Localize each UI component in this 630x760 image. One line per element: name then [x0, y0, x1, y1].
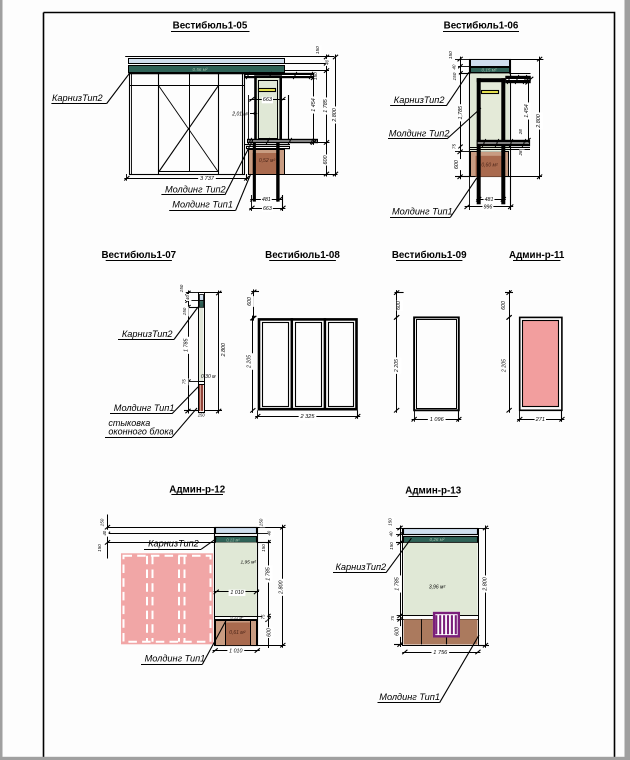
svg-text:600: 600: [266, 628, 272, 637]
svg-text:481: 481: [485, 197, 494, 203]
svg-text:1,785: 1,785: [458, 105, 464, 119]
svg-text:75: 75: [452, 144, 457, 150]
svg-text:996: 996: [483, 205, 492, 211]
svg-text:40: 40: [451, 64, 456, 70]
svg-text:КарнизТип2: КарнизТип2: [52, 93, 103, 103]
svg-text:0,30 м: 0,30 м: [201, 374, 216, 380]
svg-text:1 785: 1 785: [323, 98, 329, 112]
svg-text:0.56 м²: 0.56 м²: [193, 67, 208, 72]
svg-text:Вестибюль1-05: Вестибюль1-05: [173, 21, 248, 32]
svg-text:271: 271: [535, 417, 545, 423]
svg-text:1 785: 1 785: [184, 338, 190, 352]
svg-text:40: 40: [185, 295, 190, 300]
svg-text:Молдинг Тип1: Молдинг Тип1: [145, 654, 206, 664]
svg-text:150: 150: [448, 51, 453, 59]
svg-text:2 205: 2 205: [394, 359, 400, 373]
svg-text:Админ-р-11: Админ-р-11: [509, 250, 565, 261]
svg-text:Вестибюль1-07: Вестибюль1-07: [101, 250, 176, 261]
svg-text:оконного блока: оконного блока: [108, 427, 173, 437]
svg-text:КарнизТип2: КарнизТип2: [122, 329, 173, 339]
svg-text:600: 600: [396, 301, 402, 310]
svg-text:3,96 м²: 3,96 м²: [429, 585, 446, 591]
svg-text:1 756: 1 756: [433, 650, 448, 656]
svg-text:150: 150: [182, 307, 187, 315]
svg-text:600: 600: [501, 301, 507, 310]
svg-text:2 325: 2 325: [300, 414, 316, 420]
svg-text:150: 150: [387, 518, 392, 526]
svg-text:1 010: 1 010: [229, 648, 242, 654]
svg-text:Админ-р-13: Админ-р-13: [405, 485, 461, 496]
svg-text:0,26 м²: 0,26 м²: [430, 537, 445, 542]
svg-text:1 454: 1 454: [311, 98, 317, 112]
svg-text:28: 28: [518, 150, 523, 157]
svg-text:150: 150: [315, 46, 320, 54]
svg-text:0,60 м²: 0,60 м²: [481, 163, 498, 169]
svg-text:150: 150: [452, 72, 457, 80]
svg-text:Молдинг Тип2: Молдинг Тип2: [389, 128, 450, 138]
svg-text:1 010: 1 010: [230, 590, 243, 596]
svg-text:2.800: 2.800: [279, 581, 285, 596]
svg-text:28: 28: [518, 129, 523, 136]
svg-text:Вестибюль1-08: Вестибюль1-08: [265, 250, 340, 261]
svg-text:3 737: 3 737: [200, 176, 215, 182]
svg-text:150: 150: [100, 518, 105, 526]
svg-text:663: 663: [263, 206, 272, 212]
svg-text:2.800: 2.800: [482, 577, 488, 592]
svg-text:2.800: 2.800: [332, 108, 338, 123]
svg-text:КарнизТип2: КарнизТип2: [394, 95, 445, 105]
svg-text:150: 150: [261, 544, 266, 552]
svg-text:2 205: 2 205: [246, 355, 252, 369]
svg-text:40: 40: [325, 59, 330, 65]
svg-text:0,61 м²: 0,61 м²: [229, 630, 246, 636]
svg-text:40: 40: [267, 530, 272, 535]
svg-text:150: 150: [389, 542, 394, 550]
svg-text:1 096: 1 096: [430, 417, 445, 423]
svg-text:2,01 м²: 2,01 м²: [231, 111, 249, 117]
svg-text:663: 663: [263, 97, 273, 103]
svg-text:481: 481: [262, 197, 271, 203]
svg-text:Вестибюль1-06: Вестибюль1-06: [444, 21, 519, 32]
svg-text:150: 150: [313, 72, 318, 80]
svg-text:Молдинг Тип1: Молдинг Тип1: [172, 200, 233, 210]
svg-text:40: 40: [389, 531, 394, 536]
svg-text:600: 600: [323, 156, 329, 165]
svg-text:Молдинг Тип1: Молдинг Тип1: [379, 692, 440, 702]
svg-text:Молдинг Тип1: Молдинг Тип1: [114, 403, 175, 413]
svg-text:0,52 м²: 0,52 м²: [259, 158, 276, 164]
svg-text:КарнизТип2: КарнизТип2: [148, 539, 199, 549]
svg-text:150: 150: [97, 544, 102, 552]
svg-text:1 785: 1 785: [394, 576, 400, 590]
svg-text:150: 150: [179, 284, 184, 292]
svg-text:1,95 м²: 1,95 м²: [240, 559, 256, 565]
svg-text:1 785: 1 785: [266, 566, 272, 580]
svg-text:600: 600: [247, 297, 253, 306]
svg-text:600: 600: [395, 627, 401, 636]
svg-text:0,13 м²: 0,13 м²: [231, 615, 245, 620]
svg-text:2 205: 2 205: [502, 359, 508, 373]
svg-text:Молдинг Тип1: Молдинг Тип1: [392, 207, 453, 217]
svg-text:0,13 м²: 0,13 м²: [226, 537, 240, 542]
svg-text:40: 40: [102, 530, 107, 535]
svg-text:600: 600: [454, 160, 460, 169]
svg-text:2.800: 2.800: [221, 343, 227, 358]
svg-text:1.454: 1.454: [524, 104, 530, 118]
svg-text:0,15 м²: 0,15 м²: [482, 68, 497, 73]
svg-text:Вестибюль1-09: Вестибюль1-09: [392, 250, 467, 261]
svg-text:Молдинг Тип2: Молдинг Тип2: [165, 184, 226, 194]
svg-text:Админ-р-12: Админ-р-12: [169, 484, 225, 495]
svg-text:75: 75: [261, 614, 266, 619]
svg-text:75: 75: [390, 615, 395, 620]
svg-text:2.800: 2.800: [536, 114, 542, 129]
svg-text:КарнизТип2: КарнизТип2: [336, 562, 387, 572]
svg-text:150: 150: [259, 518, 264, 526]
svg-text:75: 75: [182, 379, 187, 385]
svg-text:150: 150: [198, 413, 206, 418]
